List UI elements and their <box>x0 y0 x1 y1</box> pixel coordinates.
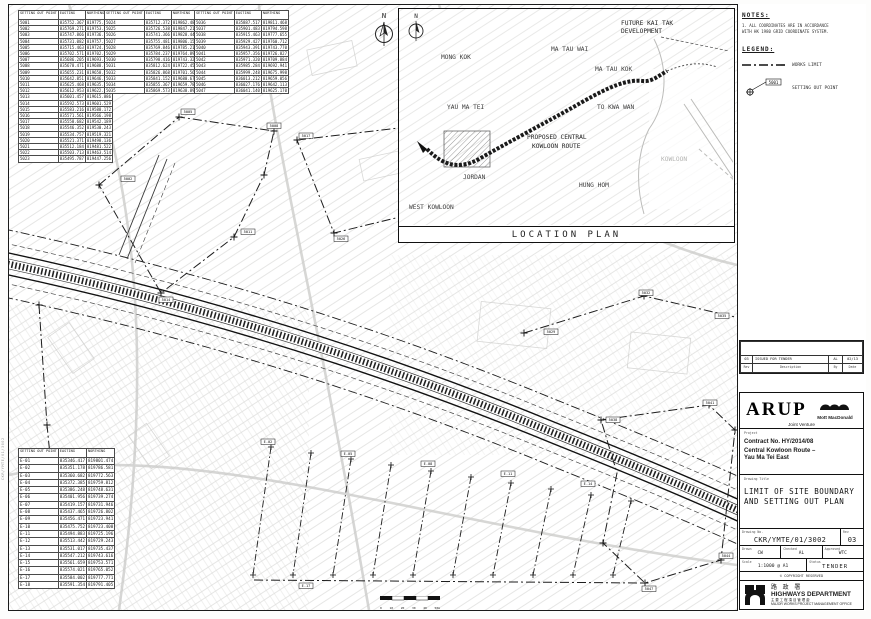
svg-text:KOWLOON: KOWLOON <box>661 156 687 163</box>
svg-text:5014: 5014 <box>162 298 171 302</box>
location-plan-inset: N MONG KOK MA TAU WAI MA TAU KOK YAU MA … <box>398 8 735 243</box>
svg-text:5029: 5029 <box>547 330 556 334</box>
table-row: 5035835869.573819638.897 <box>105 88 199 94</box>
table-row: E-05835386.248819748.631 <box>19 487 115 494</box>
coordinate-table-2: SETTING OUT POINTEASTINGNORTHING50248357… <box>104 10 199 94</box>
svg-text:WEST KOWLOON: WEST KOWLOON <box>409 204 454 211</box>
table-row: E-15835561.659819753.571 <box>19 560 115 567</box>
table-row: E-17835584.002819777.771 <box>19 574 115 581</box>
table-row: E-01835346.417819801.474 <box>19 458 115 465</box>
table-row: E-08835437.465819726.802 <box>19 509 115 516</box>
svg-text:FUTURE KAI TAK: FUTURE KAI TAK <box>621 20 673 27</box>
mott-arcs-icon <box>818 399 852 411</box>
svg-text:MA TAU WAI: MA TAU WAI <box>551 46 589 53</box>
title-block: ARUP Mott MacDonald Joint Venture Projec… <box>739 392 864 610</box>
svg-text:5008: 5008 <box>270 124 279 128</box>
svg-text:E-08: E-08 <box>424 462 433 466</box>
consultant-band: ARUP Mott MacDonald Joint Venture <box>740 393 863 429</box>
svg-text:5001: 5001 <box>769 80 779 85</box>
location-plan-map: N MONG KOK MA TAU WAI MA TAU KOK YAU MA … <box>399 9 733 225</box>
drawing-number-cell: Drawing No. CKR/YMTE/01/3002 <box>740 529 841 545</box>
svg-text:5041: 5041 <box>706 401 715 405</box>
approved-cell: Approved WTC <box>823 546 863 558</box>
svg-text:5026: 5026 <box>337 237 346 241</box>
table-row: E-14835547.212819743.616 <box>19 552 115 559</box>
svg-text:5017: 5017 <box>302 134 311 138</box>
scale-bar-labels: 01020304050m <box>380 606 440 610</box>
table-row: E-16835574.021819765.052 <box>19 567 115 574</box>
svg-text:TO KWA WAN: TO KWA WAN <box>597 104 635 111</box>
svg-text:5032: 5032 <box>642 291 651 295</box>
checked-cell: Checked AL <box>781 546 822 558</box>
svg-text:MA TAU KOK: MA TAU KOK <box>595 66 633 73</box>
contract-number: Contract No. HY/2014/08 <box>744 439 859 445</box>
table-header-row: SETTING OUT POINTEASTINGNORTHING <box>195 11 289 20</box>
coordinate-table-3: SETTING OUT POINTEASTINGNORTHING50368358… <box>194 10 289 94</box>
revision-cell: Rev 03 <box>841 529 863 545</box>
svg-text:E-11: E-11 <box>504 472 513 476</box>
svg-text:KOWLOON ROUTE: KOWLOON ROUTE <box>532 143 581 150</box>
highways-department-logo <box>744 584 766 606</box>
svg-text:5011: 5011 <box>244 230 253 234</box>
svg-text:YAU MA TEI: YAU MA TEI <box>447 104 485 111</box>
scale-status-band: Scale 1:1000 @ A1 Status TENDER <box>740 559 863 572</box>
svg-text:5044: 5044 <box>722 554 731 558</box>
table-header-row: SETTING OUT POINTEASTINGNORTHING <box>105 11 199 20</box>
svg-text:DEVELOPMENT: DEVELOPMENT <box>621 28 662 35</box>
legend-works-limit: WORKS LIMIT <box>742 62 862 68</box>
svg-text:E-02: E-02 <box>264 440 273 444</box>
scale-cell: Scale 1:1000 @ A1 <box>740 559 807 571</box>
drawn-cell: Drawn CW <box>740 546 781 558</box>
drawing-title: LIMIT OF SITE BOUNDARY AND SETTING OUT P… <box>744 487 859 507</box>
notes-title: NOTES: <box>742 12 862 19</box>
coordinate-table-1: SETTING OUT POINTEASTINGNORTHING50018357… <box>18 10 113 163</box>
svg-text:5035: 5035 <box>718 314 727 318</box>
svg-text:5002: 5002 <box>124 177 133 181</box>
table-row: E-13835531.017819735.437 <box>19 545 115 552</box>
revision-header-row: Rev Description By Date <box>741 363 863 372</box>
table-row: E-12835513.442819729.243 <box>19 538 115 545</box>
status-value: TENDER <box>809 564 861 570</box>
svg-text:E-05: E-05 <box>344 452 353 456</box>
notes-block: NOTES: 1. ALL COORDINATES ARE IN ACCORDA… <box>742 12 862 99</box>
table-row: 5023835495.787819447.256 <box>19 156 113 162</box>
svg-text:E-14: E-14 <box>584 482 593 486</box>
drawing-title-band: Drawing Title LIMIT OF SITE BOUNDARY AND… <box>740 475 863 529</box>
table-header-row: SETTING OUT POINTEASTINGNORTHING <box>19 11 113 20</box>
svg-text:JORDAN: JORDAN <box>463 174 486 181</box>
setting-out-point-icon: 5001 <box>742 77 786 99</box>
signoff-band: Drawn CW Checked AL Approved WTC <box>740 546 863 559</box>
table-row: E-04835372.385819759.812 <box>19 479 115 486</box>
note-line-2: WITH HK 1980 GRID COORDINATE SYSTEM. <box>742 29 862 35</box>
plot-margin-note: CKR/YMTE/01/3002 <box>1 437 5 480</box>
legend-title: LEGEND: <box>742 46 862 53</box>
svg-text:MONG KOK: MONG KOK <box>441 54 471 61</box>
arup-logo: ARUP <box>746 399 807 421</box>
revision-table: 03 ISSUED FOR TENDER AL 02/13 Rev Descri… <box>739 340 864 374</box>
drawing-number-band: Drawing No. CKR/YMTE/01/3002 Rev 03 <box>740 529 863 546</box>
mott-macdonald-logo: Mott MacDonald <box>812 396 858 420</box>
location-plan-title: LOCATION PLAN <box>399 226 734 242</box>
scale-bar-graphic <box>380 596 440 602</box>
svg-text:HUNG HOM: HUNG HOM <box>579 182 609 189</box>
svg-text:5047: 5047 <box>645 587 654 591</box>
table-row: 5047836041.140819625.170 <box>195 88 289 94</box>
works-area-hatch <box>444 131 490 167</box>
table-header-row: SETTING OUT POINTEASTINGNORTHING <box>19 449 115 458</box>
project-band: Project Contract No. HY/2014/08 Central … <box>740 429 863 475</box>
scale-value: 1:1000 @ A1 <box>742 564 804 569</box>
drawing-sheet: 5002500550085011501450175020502350265029… <box>0 0 871 619</box>
svg-text:E-17: E-17 <box>302 584 311 588</box>
department-text: 路 政 署 HIGHWAYS DEPARTMENT 主要工程項目管理處 MAJO… <box>771 585 852 606</box>
table-row: E-11835494.883819725.196 <box>19 530 115 537</box>
table-row: E-03835360.682819772.563 <box>19 472 115 479</box>
svg-text:5005: 5005 <box>184 110 193 114</box>
copyright-line: © COPYRIGHT RESERVED <box>740 572 863 581</box>
project-name: Central Kowloon Route – Yau Ma Tei East <box>744 448 859 462</box>
svg-text:PROPOSED CENTRAL: PROPOSED CENTRAL <box>527 134 587 141</box>
table-row: E-02835351.178819786.581 <box>19 465 115 472</box>
svg-text:5038: 5038 <box>609 418 618 422</box>
works-limit-line-icon <box>742 62 786 68</box>
drawing-number: CKR/YMTE/01/3002 <box>742 536 838 544</box>
north-arrow-icon: N <box>372 10 396 52</box>
svg-text:N: N <box>414 13 418 20</box>
status-cell: Status TENDER <box>807 559 863 571</box>
table-row: E-10835475.752819723.408 <box>19 523 115 530</box>
department-band: 路 政 署 HIGHWAYS DEPARTMENT 主要工程項目管理處 MAJO… <box>740 581 863 609</box>
drawing-title-label: Drawing Title <box>744 477 859 481</box>
coordinate-table-4: SETTING OUT POINTEASTINGNORTHINGE-018353… <box>18 448 115 589</box>
legend-setting-out-point: 5001 SETTING OUT POINT <box>742 77 862 99</box>
project-label: Project <box>744 431 859 435</box>
table-row: E-07835419.157819731.946 <box>19 501 115 508</box>
table-row: E-06835401.956819739.274 <box>19 494 115 501</box>
svg-text:N: N <box>382 12 386 20</box>
table-row: E-18835591.354819791.405 <box>19 582 115 589</box>
revision-number: 03 <box>843 536 861 544</box>
scale-bar: 01020304050m <box>380 587 440 610</box>
table-row: E-09835456.471819723.941 <box>19 516 115 523</box>
revision-row: 03 ISSUED FOR TENDER AL 02/13 <box>741 356 863 364</box>
joint-venture-label: Joint Venture <box>740 422 863 427</box>
